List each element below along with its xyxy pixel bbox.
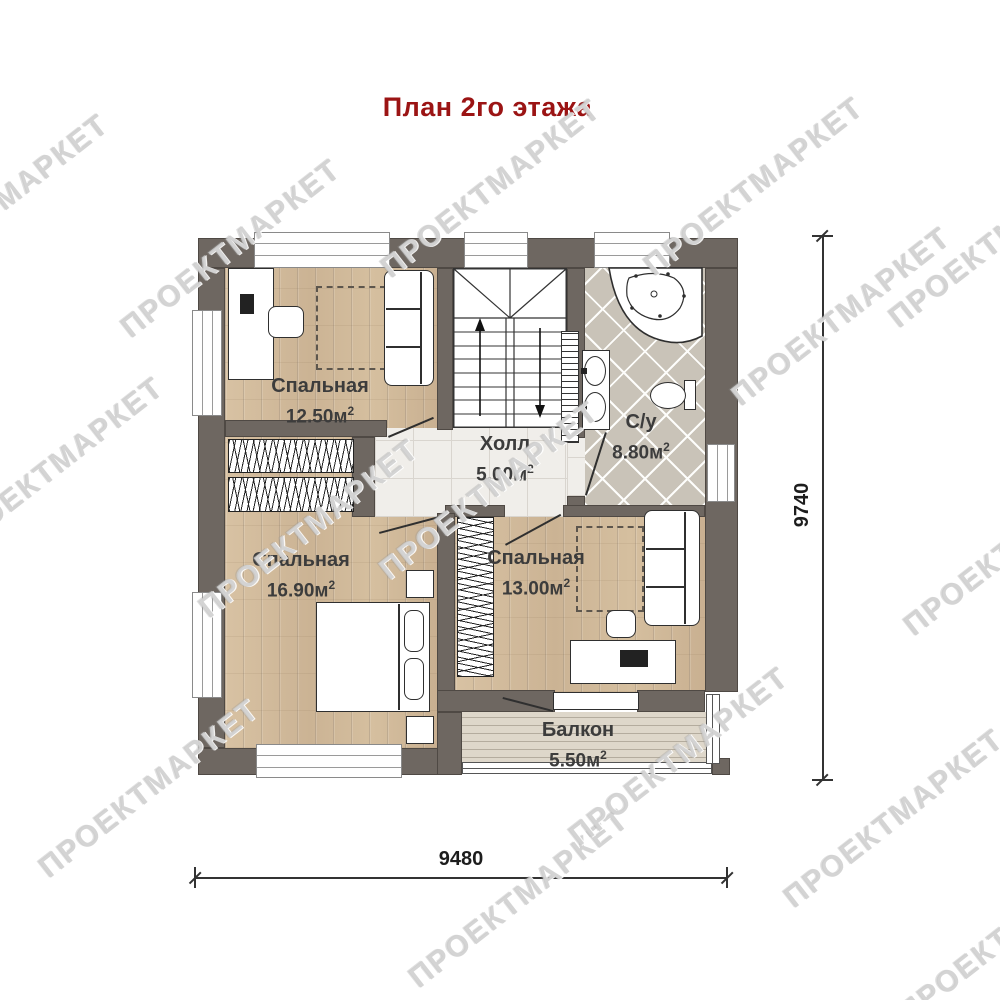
sofa-cushion-line	[646, 586, 684, 588]
watermark-text: ПРОЕКТМАРКЕТ	[778, 723, 1000, 916]
sofa-cushion-line	[646, 548, 684, 550]
sofa-cushion-line	[386, 346, 420, 348]
balcony-door	[553, 692, 639, 710]
wardrobe	[228, 477, 354, 512]
rug	[316, 286, 386, 370]
dimension-line-right	[822, 236, 824, 780]
balcony-railing-side	[706, 694, 720, 764]
wall-stairwell-left	[437, 268, 453, 430]
room-label-bathroom: С/у 8.80м2	[582, 410, 700, 465]
room-area: 13.00м2	[462, 571, 610, 601]
watermark-text: ПРОЕКТМАРКЕТ	[0, 371, 171, 564]
window-left-bedroom-bl	[192, 592, 222, 698]
staircase	[453, 268, 567, 428]
watermark-text: ПРОЕКТМАРКЕТ	[883, 143, 1000, 336]
sofa-cushion-line	[386, 308, 420, 310]
wall-balcony-left	[437, 712, 462, 775]
room-area: 5.50м2	[502, 743, 654, 773]
wall-bedroom-br-south-a	[437, 690, 555, 712]
window-right-bathroom	[707, 444, 735, 502]
desk-chair	[268, 306, 304, 338]
room-label-bedroom-tl: Спальная 12.50м2	[240, 374, 400, 429]
dimension-label-right: 9740	[791, 415, 813, 595]
room-label-hall: Холл 5.00м2	[432, 432, 578, 487]
watermark-text: ПРОЕКТМАРКЕТ	[0, 108, 116, 301]
sofa	[644, 510, 700, 626]
room-area: 5.00м2	[432, 457, 578, 487]
faucet-icon	[581, 368, 587, 374]
toilet-bowl	[650, 382, 686, 409]
dimension-label-bottom: 9480	[376, 848, 546, 871]
monitor	[240, 294, 254, 314]
room-label-bedroom-bl: Спальная 16.90м2	[226, 548, 376, 603]
room-name: Балкон	[502, 718, 654, 743]
room-label-balcony: Балкон 5.50м2	[502, 718, 654, 773]
room-name: Спальная	[226, 548, 376, 573]
nightstand	[406, 570, 434, 598]
pillow	[404, 610, 424, 652]
window-top-stairs	[464, 232, 528, 268]
page-title: План 2го этажа	[0, 92, 975, 123]
window-bottom-bedroom-bl	[256, 744, 402, 778]
room-area: 12.50м2	[240, 399, 400, 429]
radiator-shaft	[561, 331, 579, 443]
desk-chair	[606, 610, 636, 638]
wall-niche-right	[352, 437, 375, 517]
nightstand	[406, 716, 434, 744]
bed-blanket-line	[398, 604, 400, 710]
room-name: Спальная	[240, 374, 400, 399]
watermark-text: ПРОЕКТМАРКЕТ	[403, 803, 636, 996]
sofa	[384, 270, 434, 386]
wardrobe	[228, 439, 354, 473]
sofa-back-line	[420, 272, 422, 384]
watermark-text: ПРОЕКТМАРКЕТ	[725, 221, 958, 414]
wall-bedroom-br-south-b	[637, 690, 705, 712]
room-name: Спальная	[462, 546, 610, 571]
window-top-bedroom	[254, 232, 390, 268]
floor-plan-canvas: План 2го этажа	[0, 0, 1000, 1000]
room-label-bedroom-br: Спальная 13.00м2	[462, 546, 610, 601]
sink-basin	[584, 356, 606, 386]
watermark-text: ПРОЕКТМАРКЕТ	[898, 451, 1000, 644]
pillow	[404, 658, 424, 700]
room-area: 8.80м2	[582, 435, 700, 465]
watermark-text: ПРОЕКТМАРКЕТ	[893, 838, 1000, 1000]
room-name: С/у	[582, 410, 700, 435]
room-area: 16.90м2	[226, 573, 376, 603]
room-name: Холл	[432, 432, 578, 457]
window-left-bedroom-tl	[192, 310, 222, 416]
window-top-bathroom	[594, 232, 670, 268]
sofa-back-line	[684, 512, 686, 624]
corner-bathtub	[604, 266, 704, 350]
dimension-line-bottom	[195, 877, 727, 879]
laptop	[620, 650, 648, 667]
